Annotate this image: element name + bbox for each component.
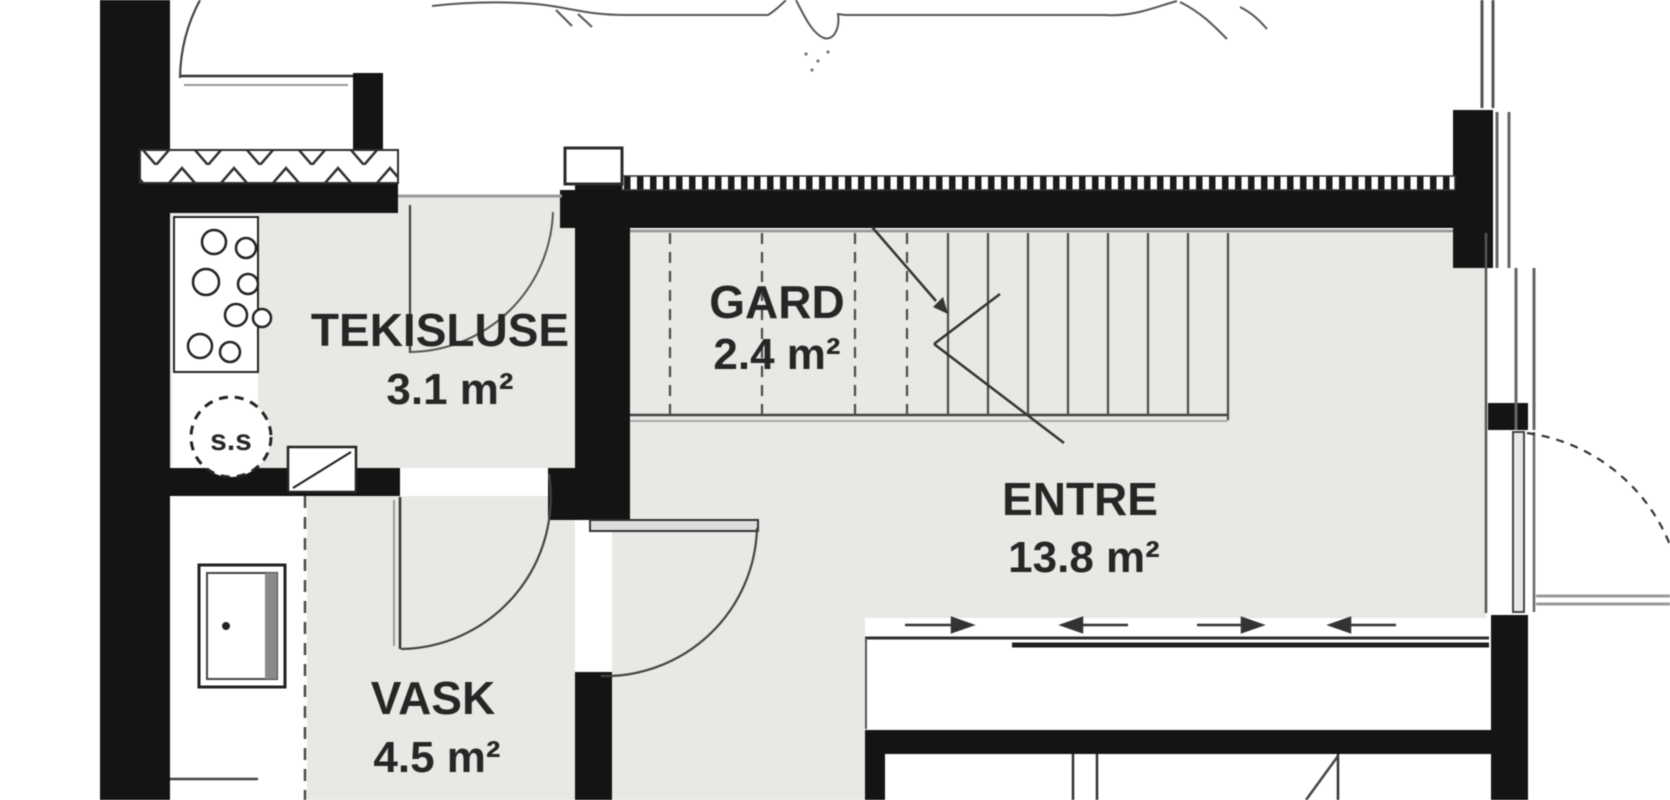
terrain-line-3 <box>1104 1 1177 15</box>
terrain-dash-2 <box>578 14 592 27</box>
floor-plan-svg: TEKISLUSE 3.1 m² GARD 2.4 m² ENTRE 13.8 … <box>0 0 1670 800</box>
slide-arrow-left-2-head-icon <box>1330 618 1350 632</box>
wall-right-lower <box>1491 615 1528 800</box>
terrain-line-2 <box>796 0 1104 38</box>
terrain-line-5 <box>1240 7 1267 29</box>
topleft-door-swing-arc <box>180 0 200 78</box>
column-square <box>565 148 622 184</box>
slide-arrow-right-2-head-icon <box>1242 618 1262 632</box>
doorway-strip <box>575 520 612 672</box>
floor-plan-page: TEKISLUSE 3.1 m² GARD 2.4 m² ENTRE 13.8 … <box>0 0 1670 800</box>
room-label-tekisluse: TEKISLUSE <box>311 304 569 356</box>
wardrobe-interior <box>866 640 1489 729</box>
room-area-tekisluse: 3.1 m² <box>386 365 513 414</box>
slide-arrow-left-1-head-icon <box>1062 618 1082 632</box>
bottom-room <box>885 754 1491 800</box>
room-area-vask: 4.5 m² <box>373 733 500 782</box>
entrance-door-leaf <box>1513 432 1524 612</box>
wall-top-left-black <box>140 183 398 213</box>
room-area-entre: 13.8 m² <box>1008 533 1160 582</box>
wall-hatch-bands <box>140 148 1455 190</box>
wall-t-block <box>548 468 630 520</box>
washer-inner-shade <box>265 573 277 679</box>
room-label-vask: VASK <box>371 672 495 724</box>
ss-circle-label: s.s <box>210 424 252 457</box>
room-area-gard: 2.4 m² <box>713 330 840 379</box>
wall-top-long <box>560 190 1455 228</box>
sliding-door-arrows <box>905 618 1396 632</box>
wall-exterior-left <box>100 0 170 800</box>
wall-tek-vask <box>170 468 400 496</box>
wall-wardrobe-back <box>865 730 1491 754</box>
wall-wardrobe-left-stub <box>865 730 885 800</box>
terrain-line-1 <box>432 0 786 15</box>
room-label-entre: ENTRE <box>1002 473 1158 525</box>
slide-arrow-right-1-head-icon <box>952 618 972 632</box>
terrain-dash-1 <box>556 10 572 26</box>
wall-stub-lower <box>575 672 612 800</box>
washer-dot-icon <box>222 622 230 630</box>
terrain-sketch-lines <box>432 0 1267 72</box>
entrance-door-swing-arc <box>1527 433 1670 545</box>
wall-right-pier-door <box>1488 403 1528 430</box>
terrain-line-4 <box>1180 2 1227 39</box>
door-post-top-left <box>353 73 383 153</box>
room-label-gard: GARD <box>709 276 844 328</box>
insulation-hatch-left <box>140 150 398 183</box>
entre-floor-lower <box>610 618 865 800</box>
brick-hatch-top <box>622 176 1455 190</box>
tek-entre-door-leaf <box>590 520 758 531</box>
terrain-speckles <box>804 50 829 71</box>
